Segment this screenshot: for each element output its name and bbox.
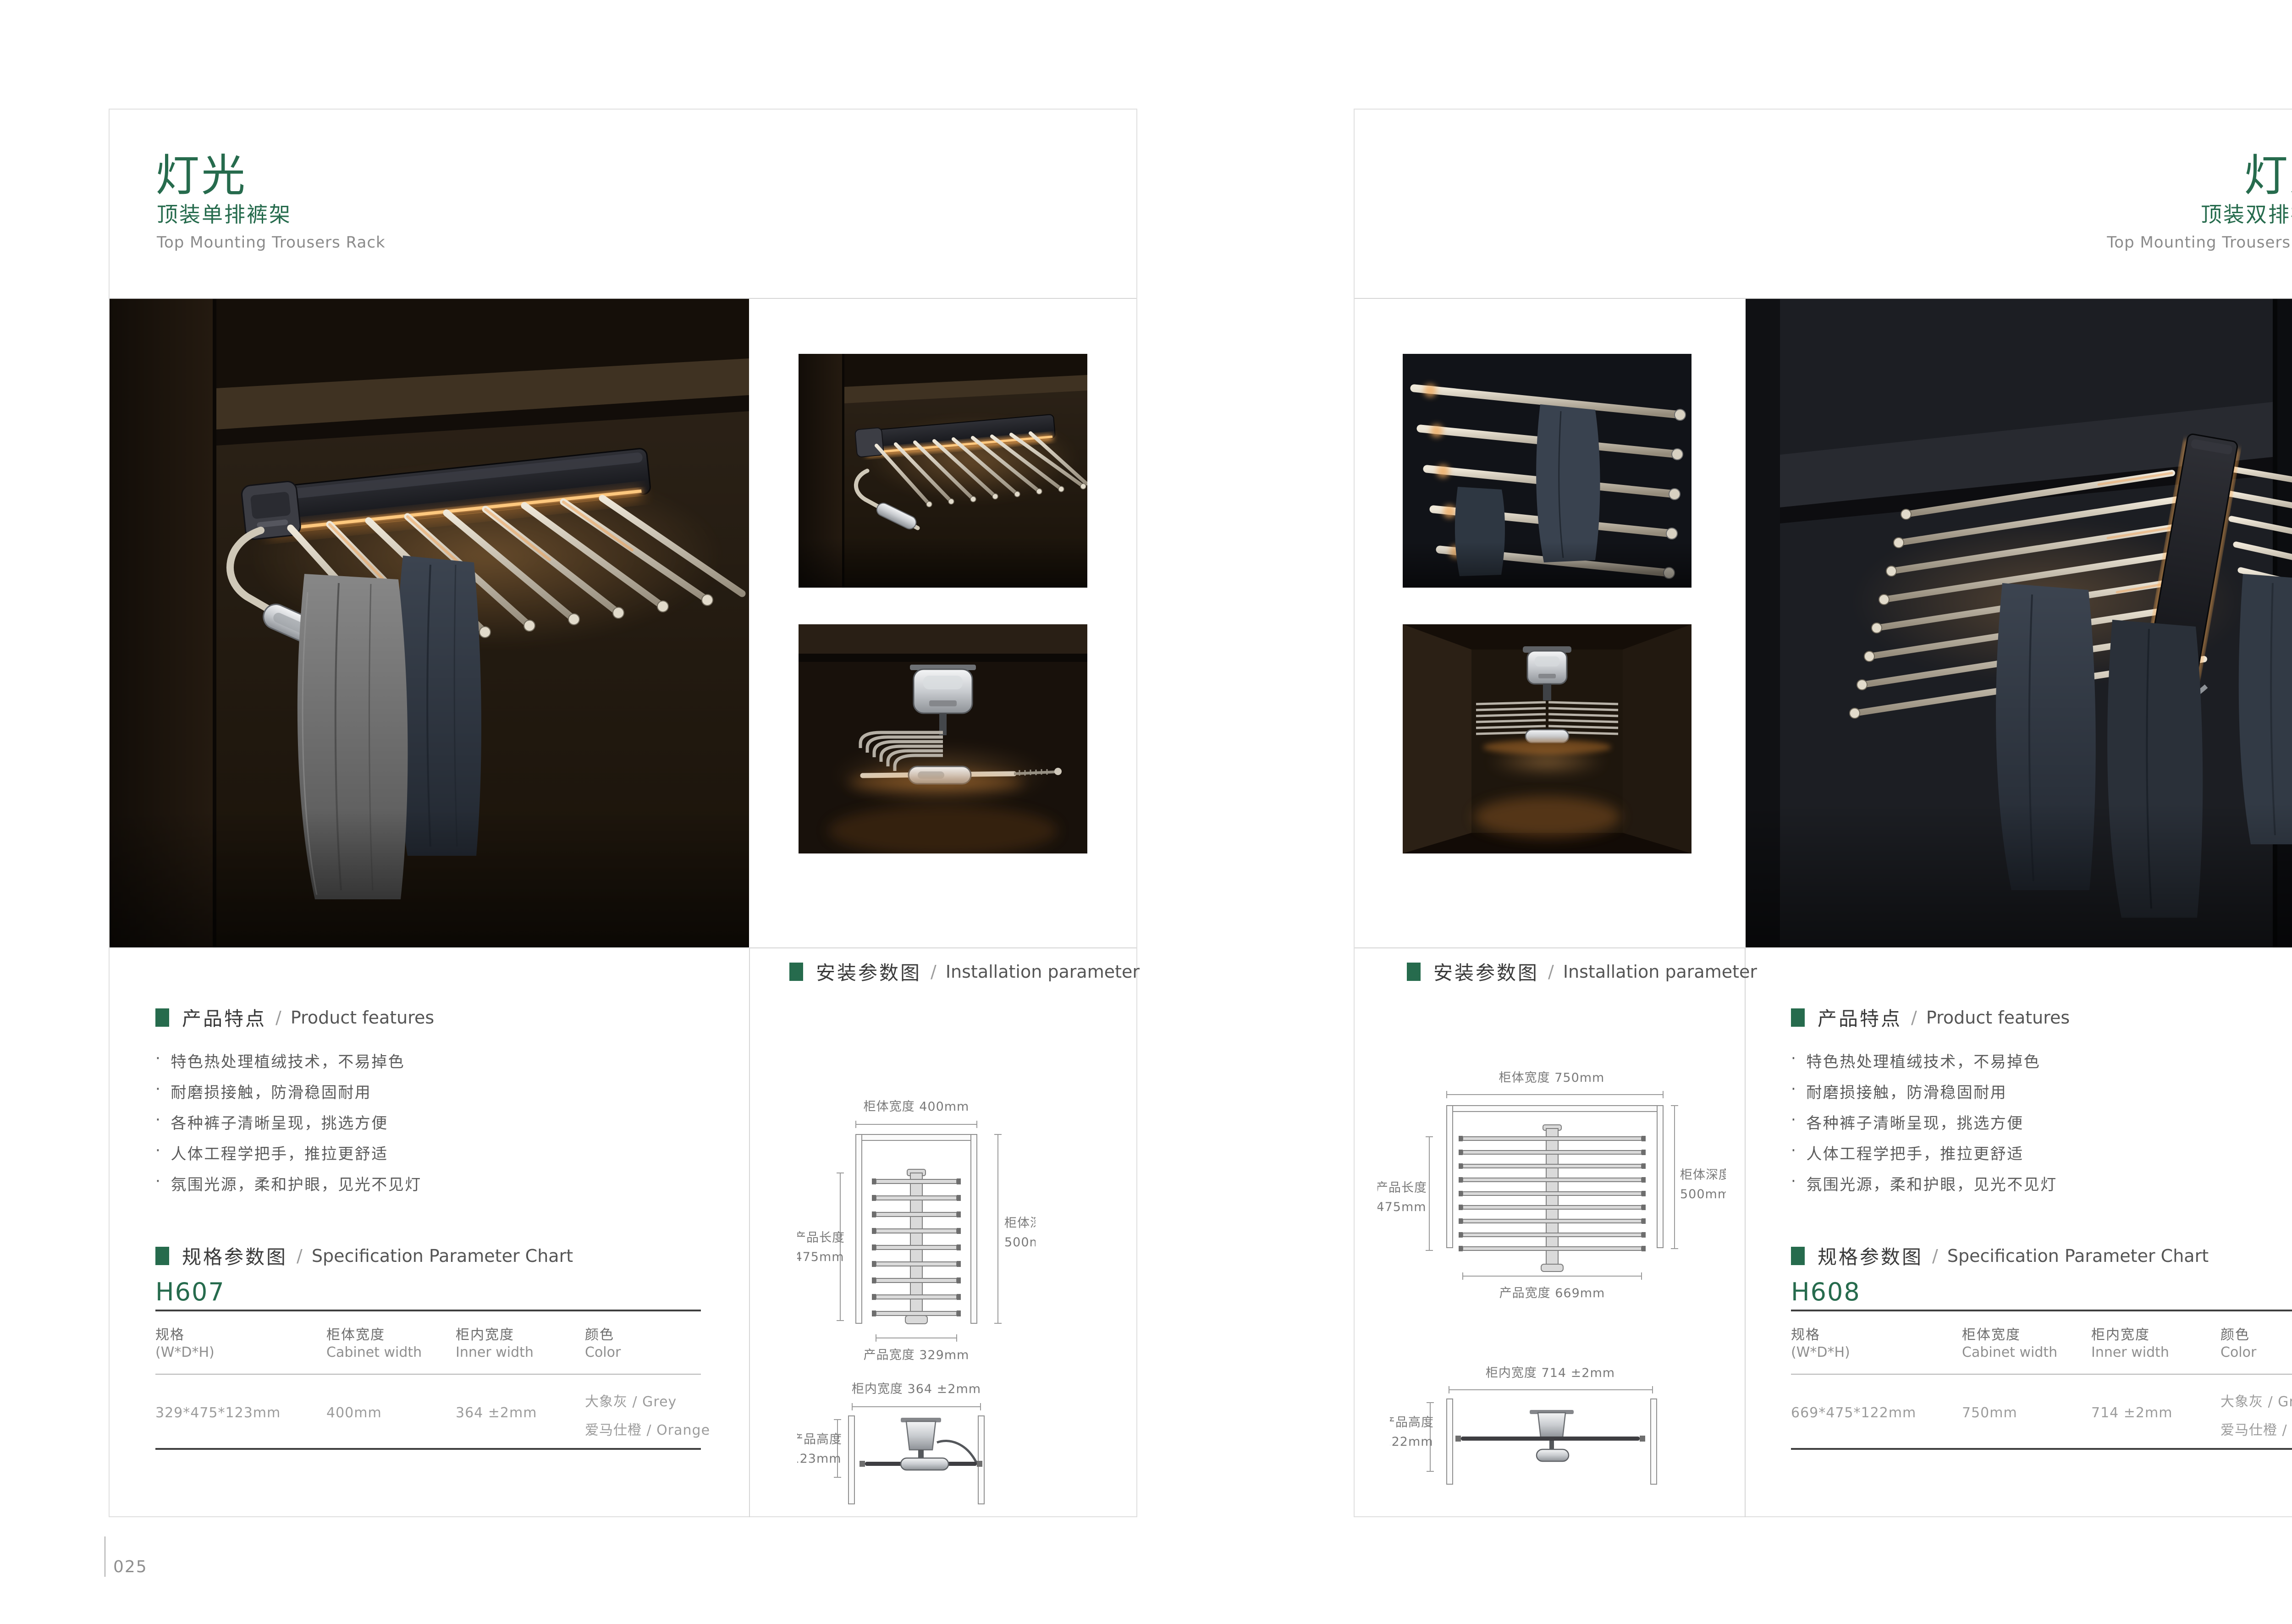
wardrobe-double-rack-illustration <box>1746 299 2292 947</box>
section-divider <box>1355 947 1745 948</box>
cell-inner-width: 714 ±2mm <box>2091 1405 2172 1421</box>
install-label-en: Installation parameter <box>1563 962 1757 982</box>
spec-section-header: 规格参数图 / Specification Parameter Chart <box>155 1242 573 1270</box>
model-number: H608 <box>1791 1277 1861 1306</box>
features-section-header: 产品特点 / Product features <box>1791 1003 2070 1031</box>
dim-product-width: 产品宽度 329mm <box>864 1348 970 1362</box>
dim-cabinet-width: 柜体宽度 400mm <box>864 1100 970 1114</box>
model-number: H607 <box>155 1277 225 1306</box>
col-header-inner-en: Inner width <box>456 1344 534 1360</box>
dim-inner-width: 柜内宽度 364 ±2mm <box>852 1382 981 1396</box>
install-front-view-diagram: 柜内宽度 714 ±2mm 产品高度 122mm <box>1390 1359 1711 1496</box>
col-header-color-zh: 颜色 <box>585 1323 614 1343</box>
feature-item: ·各种裤子清晰呈现，挑选方便 <box>155 1111 388 1133</box>
spec-label-zh: 规格参数图 <box>182 1242 287 1270</box>
detail-photo-topdown <box>1403 624 1691 853</box>
cell-color-grey: 大象灰 / Grey <box>2220 1390 2292 1410</box>
bullet-dot-icon: · <box>1791 1141 1797 1160</box>
feature-item: ·特色热处理植绒技术，不易掉色 <box>1791 1049 2040 1072</box>
page-subtitle: 顶装双排裤架 <box>2201 203 2292 226</box>
col-header-inner-zh: 柜内宽度 <box>456 1323 514 1343</box>
page-title: 灯光 <box>155 152 247 200</box>
section-divider <box>749 947 1136 948</box>
install-label-zh: 安装参数图 <box>1433 958 1539 985</box>
dim-cabinet-depth-val: 500mm <box>1004 1235 1036 1250</box>
spec-table: 规格 (W*D*H) 柜体宽度 Cabinet width 柜内宽度 Inner… <box>1791 1310 2292 1450</box>
cell-color-orange: 爱马仕橙 / Orange <box>585 1419 710 1439</box>
cell-color-grey: 大象灰 / Grey <box>585 1390 677 1410</box>
cabinet-topdown-illustration <box>1403 624 1691 853</box>
detail-photo-angle <box>799 354 1087 588</box>
install-label-zh: 安装参数图 <box>816 958 921 985</box>
table-rule-top <box>1791 1310 2292 1311</box>
main-product-photo <box>1746 299 2292 947</box>
feature-item: ·氛围光源，柔和护眼，见光不见灯 <box>1791 1172 2057 1195</box>
feature-item: ·各种裤子清晰呈现，挑选方便 <box>1791 1111 2024 1133</box>
main-product-photo <box>110 299 749 947</box>
column-divider <box>749 947 750 1517</box>
dim-product-length-zh: 产品长度 <box>797 1231 845 1245</box>
cell-inner-width: 364 ±2mm <box>456 1405 537 1421</box>
green-square-icon <box>1407 963 1421 981</box>
dim-product-height-zh: 产品高度 <box>1390 1415 1434 1430</box>
col-header-inner-en: Inner width <box>2091 1344 2169 1360</box>
cell-cabinet-width: 750mm <box>1962 1405 2017 1421</box>
bullet-dot-icon: · <box>155 1111 161 1129</box>
spec-table: 规格 (W*D*H) 柜体宽度 Cabinet width 柜内宽度 Inner… <box>155 1310 701 1450</box>
install-section-header: 安装参数图 / Installation parameter <box>1407 958 1757 985</box>
rack-angle-illustration <box>799 354 1087 588</box>
col-header-size-zh: 规格 <box>1791 1323 1820 1343</box>
cell-size: 329*475*123mm <box>155 1405 281 1421</box>
table-rule-bottom <box>1791 1448 2292 1450</box>
col-header-size-en: (W*D*H) <box>155 1344 215 1360</box>
bullet-dot-icon: · <box>1791 1080 1797 1099</box>
dim-inner-width: 柜内宽度 714 ±2mm <box>1486 1366 1615 1380</box>
dim-product-height-val: 123mm <box>797 1452 842 1466</box>
table-rule-mid <box>1791 1374 2292 1375</box>
col-header-color-en: Color <box>2220 1344 2256 1360</box>
rack-front-illustration <box>799 624 1087 853</box>
label-slash: / <box>931 962 937 982</box>
spec-section-header: 规格参数图 / Specification Parameter Chart <box>1791 1242 2209 1270</box>
cell-cabinet-width: 400mm <box>326 1405 382 1421</box>
spec-label-en: Specification Parameter Chart <box>1947 1246 2209 1266</box>
features-label-zh: 产品特点 <box>1818 1003 1902 1031</box>
bullet-dot-icon: · <box>1791 1172 1797 1191</box>
bullet-dot-icon: · <box>1791 1111 1797 1129</box>
bullet-dot-icon: · <box>155 1172 161 1191</box>
feature-item: ·氛围光源，柔和护眼，见光不见灯 <box>155 1172 422 1195</box>
detail-photo-closeup <box>1403 354 1691 588</box>
dim-product-length-val: 475mm <box>1377 1200 1427 1214</box>
bullet-dot-icon: · <box>1791 1049 1797 1068</box>
install-top-view-diagram: 柜体宽度 750mm 产品长度 475mm 柜体深度 500mm 产品宽度 66… <box>1377 1061 1726 1317</box>
detail-photo-front <box>799 624 1087 853</box>
page-right: 灯光 顶装双排裤架 Top Mounting Trousers Rack <box>1354 109 2292 1517</box>
green-square-icon <box>1791 1008 1805 1027</box>
install-front-view-diagram: 柜内宽度 364 ±2mm 产品高度 123mm <box>797 1374 1036 1511</box>
features-label-zh: 产品特点 <box>182 1003 266 1031</box>
spec-label-zh: 规格参数图 <box>1818 1242 1923 1270</box>
bullet-dot-icon: · <box>155 1080 161 1099</box>
dim-product-height-val: 122mm <box>1390 1435 1433 1449</box>
wardrobe-rack-illustration <box>110 299 749 947</box>
green-square-icon <box>155 1008 169 1027</box>
page-number-tick <box>105 1536 105 1577</box>
table-rule-bottom <box>155 1448 701 1450</box>
col-header-color-en: Color <box>585 1344 621 1360</box>
bullet-dot-icon: · <box>155 1049 161 1068</box>
features-section-header: 产品特点 / Product features <box>155 1003 434 1031</box>
spec-label-en: Specification Parameter Chart <box>312 1246 573 1266</box>
page-subtitle-en: Top Mounting Trousers Rack <box>2107 234 2292 251</box>
page-subtitle-en: Top Mounting Trousers Rack <box>157 234 386 251</box>
label-slash: / <box>1911 1007 1917 1028</box>
label-slash: / <box>297 1246 303 1266</box>
features-label-en: Product features <box>1926 1007 2070 1028</box>
install-label-en: Installation parameter <box>946 962 1140 982</box>
dim-cabinet-depth-zh: 柜体深度 <box>1680 1168 1726 1182</box>
column-divider <box>1745 947 1746 1517</box>
dim-cabinet-depth-val: 500mm <box>1680 1187 1726 1201</box>
page-title: 灯光 <box>2244 152 2292 200</box>
green-square-icon <box>1791 1247 1805 1265</box>
feature-item: ·耐磨损接触，防滑稳固耐用 <box>1791 1080 2007 1102</box>
col-header-inner-zh: 柜内宽度 <box>2091 1323 2150 1343</box>
cell-color-orange: 爱马仕橙 / Orange <box>2220 1419 2292 1439</box>
cell-size: 669*475*122mm <box>1791 1405 1916 1421</box>
col-header-cabinet-zh: 柜体宽度 <box>1962 1323 2021 1343</box>
page-left: 灯光 顶装单排裤架 Top Mounting Trousers Rack <box>109 109 1137 1517</box>
label-slash: / <box>1548 962 1554 982</box>
label-slash: / <box>1932 1246 1938 1266</box>
bars-closeup-illustration <box>1403 354 1691 588</box>
table-rule-top <box>155 1310 701 1311</box>
install-top-view-diagram: 柜体宽度 400mm 产品长度 475mm 柜体深度 500mm 产品宽度 32… <box>797 1081 1036 1370</box>
col-header-size-zh: 规格 <box>155 1323 185 1343</box>
label-slash: / <box>275 1007 281 1028</box>
feature-item: ·耐磨损接触，防滑稳固耐用 <box>155 1080 371 1102</box>
page-number-left: 025 <box>113 1558 148 1576</box>
dim-product-height-zh: 产品高度 <box>797 1432 842 1447</box>
bullet-dot-icon: · <box>155 1141 161 1160</box>
page-subtitle: 顶装单排裤架 <box>157 203 292 226</box>
table-rule-mid <box>155 1374 701 1375</box>
dim-product-length-zh: 产品长度 <box>1377 1181 1427 1195</box>
features-label-en: Product features <box>291 1007 434 1028</box>
dim-product-length-val: 475mm <box>797 1250 844 1264</box>
feature-item: ·人体工程学把手，推拉更舒适 <box>1791 1141 2024 1164</box>
dim-product-width: 产品宽度 669mm <box>1499 1286 1605 1300</box>
install-section-header: 安装参数图 / Installation parameter <box>789 958 1140 985</box>
col-header-size-en: (W*D*H) <box>1791 1344 1850 1360</box>
catalog-spread: { "colors": { "accent_green": "#266B4D",… <box>0 0 2292 1624</box>
dim-cabinet-width: 柜体宽度 750mm <box>1499 1071 1605 1085</box>
green-square-icon <box>155 1247 169 1265</box>
green-square-icon <box>789 963 803 981</box>
col-header-cabinet-en: Cabinet width <box>1962 1344 2057 1360</box>
col-header-cabinet-zh: 柜体宽度 <box>326 1323 385 1343</box>
dim-cabinet-depth-zh: 柜体深度 <box>1004 1216 1036 1230</box>
col-header-color-zh: 颜色 <box>2220 1323 2250 1343</box>
feature-item: ·人体工程学把手，推拉更舒适 <box>155 1141 388 1164</box>
feature-item: ·特色热处理植绒技术，不易掉色 <box>155 1049 405 1072</box>
col-header-cabinet-en: Cabinet width <box>326 1344 422 1360</box>
